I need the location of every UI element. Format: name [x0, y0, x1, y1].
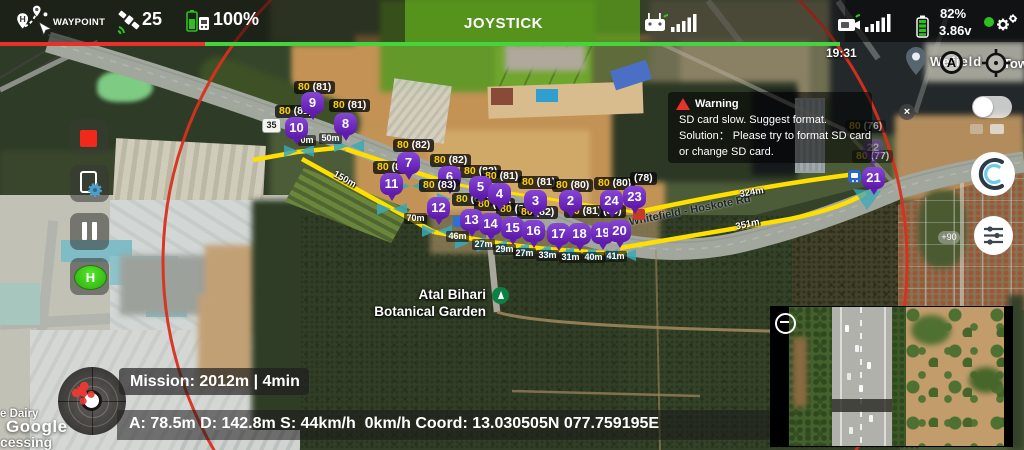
svg-text:H: H: [19, 14, 25, 24]
